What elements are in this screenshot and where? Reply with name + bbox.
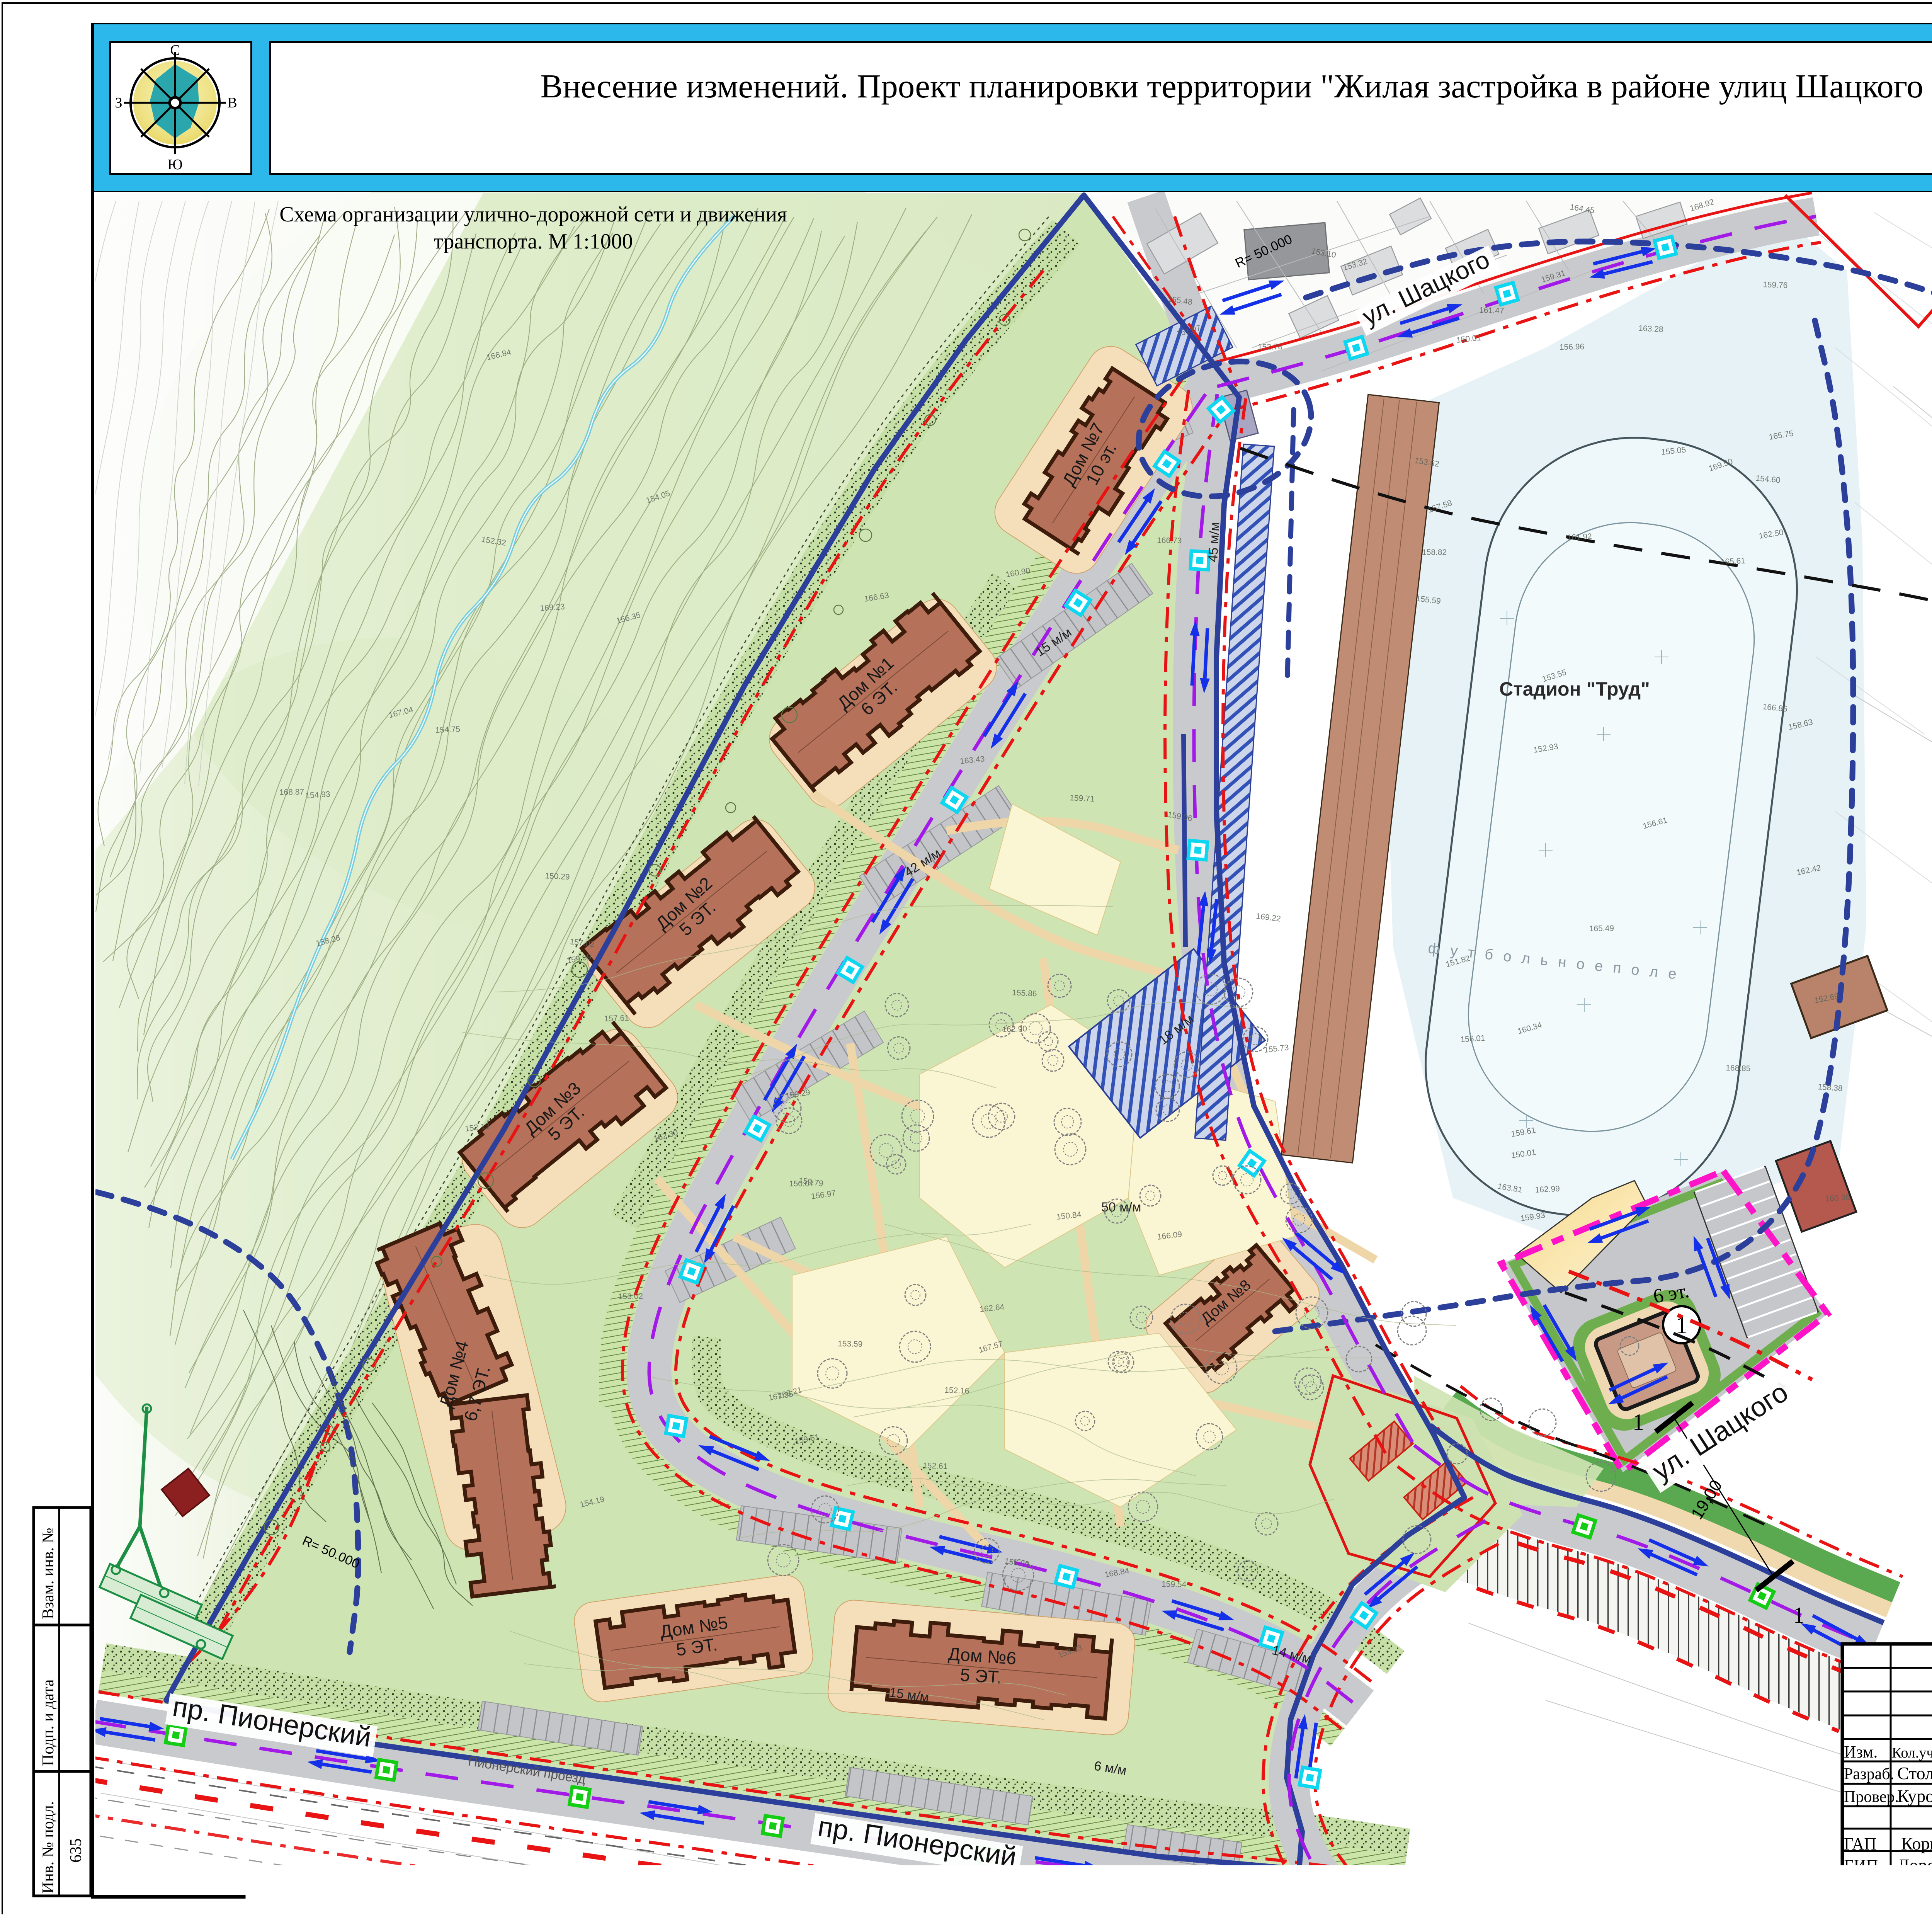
svg-text:162.90: 162.90 <box>1002 1024 1027 1034</box>
svg-text:635: 635 <box>67 1838 85 1863</box>
svg-text:Провер.: Провер. <box>1844 1788 1899 1806</box>
svg-text:159.71: 159.71 <box>1070 793 1095 803</box>
svg-text:163.28: 163.28 <box>1638 324 1663 334</box>
svg-text:154.75: 154.75 <box>435 725 460 735</box>
svg-text:С: С <box>170 42 180 58</box>
svg-text:Инв. № подл.: Инв. № подл. <box>39 1801 57 1894</box>
svg-text:160.36: 160.36 <box>1825 1193 1850 1203</box>
svg-text:166.73: 166.73 <box>1157 536 1182 545</box>
svg-text:165.49: 165.49 <box>1589 924 1614 933</box>
svg-text:1: 1 <box>1633 1409 1644 1435</box>
svg-text:169.22: 169.22 <box>1255 912 1281 924</box>
svg-text:Изм.: Изм. <box>1844 1742 1878 1761</box>
svg-text:161.47: 161.47 <box>1479 306 1504 315</box>
svg-text:153.02: 153.02 <box>618 1292 643 1301</box>
svg-text:153.59: 153.59 <box>838 1339 863 1349</box>
svg-text:Дорошин: Дорошин <box>1897 1855 1932 1875</box>
svg-text:155.86: 155.86 <box>1012 988 1037 998</box>
svg-text:168.85: 168.85 <box>1726 1063 1751 1073</box>
svg-text:154.93: 154.93 <box>305 790 331 800</box>
svg-text:Ю: Ю <box>167 157 182 173</box>
svg-text:156.01: 156.01 <box>1460 1034 1486 1044</box>
svg-text:Подп. и дата: Подп. и дата <box>39 1679 57 1766</box>
svg-text:159.54: 159.54 <box>1162 1580 1187 1589</box>
svg-text:Курочкина: Курочкина <box>1897 1786 1932 1806</box>
svg-text:158.82: 158.82 <box>1422 548 1447 557</box>
svg-text:156.96: 156.96 <box>1560 342 1585 352</box>
svg-text:150.01: 150.01 <box>1456 333 1481 345</box>
svg-text:168.87: 168.87 <box>279 788 304 797</box>
svg-text:152.16: 152.16 <box>944 1386 969 1395</box>
svg-text:162.99: 162.99 <box>1535 1184 1560 1194</box>
svg-text:Коршук: Коршук <box>1901 1834 1932 1853</box>
svg-text:Столицына: Столицына <box>1897 1763 1932 1783</box>
svg-text:В: В <box>227 95 237 111</box>
svg-text:ГИП: ГИП <box>1844 1856 1878 1875</box>
svg-text:З: З <box>115 95 122 111</box>
svg-text:158.38: 158.38 <box>1818 1082 1843 1093</box>
svg-text:Кол.уч.: Кол.уч. <box>1892 1745 1932 1761</box>
svg-text:Стадион "Труд": Стадион "Труд" <box>1499 678 1650 700</box>
svg-text:50 м/м: 50 м/м <box>1101 1200 1141 1215</box>
svg-text:45 м/м: 45 м/м <box>1206 522 1222 562</box>
svg-text:155.73: 155.73 <box>1264 1043 1289 1055</box>
svg-text:165.61: 165.61 <box>1720 556 1745 567</box>
svg-text:159.76: 159.76 <box>1763 280 1788 290</box>
svg-text:Взам. инв. №: Взам. инв. № <box>39 1528 57 1619</box>
svg-text:1: 1 <box>1793 1603 1804 1628</box>
svg-text:152.78: 152.78 <box>1258 342 1283 352</box>
svg-text:169.23: 169.23 <box>540 602 565 613</box>
svg-text:Разраб.: Разраб. <box>1844 1765 1894 1783</box>
svg-text:152.61: 152.61 <box>923 1461 948 1471</box>
svg-text:ГАП: ГАП <box>1844 1834 1876 1853</box>
svg-text:161.92: 161.92 <box>1567 532 1592 542</box>
svg-text:157.61: 157.61 <box>604 1014 629 1023</box>
svg-text:150.29: 150.29 <box>545 871 570 881</box>
